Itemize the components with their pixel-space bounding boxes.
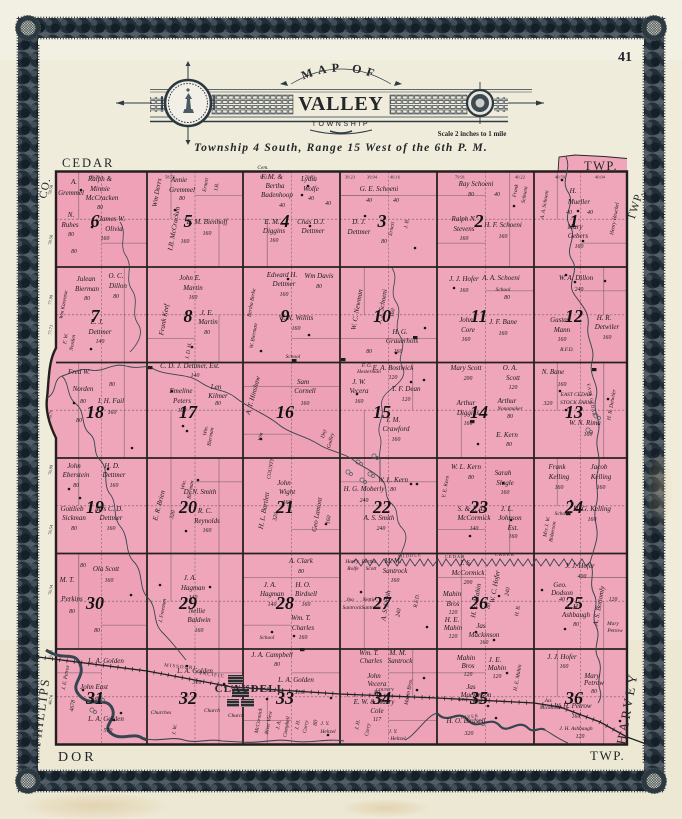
svg-text:Bierman: Bierman: [75, 285, 100, 293]
svg-text:Ralph N.: Ralph N.: [451, 215, 477, 223]
svg-text:120: 120: [449, 634, 458, 640]
svg-text:Dettmer: Dettmer: [347, 228, 371, 236]
svg-text:Arthur: Arthur: [497, 397, 517, 405]
svg-text:20: 20: [178, 497, 197, 517]
svg-text:160: 160: [392, 437, 401, 443]
svg-text:H. D.: H. D.: [103, 462, 120, 470]
svg-text:J. H. Ashbaugh: J. H. Ashbaugh: [559, 726, 592, 732]
svg-text:120: 120: [402, 397, 411, 403]
svg-text:School: School: [496, 287, 511, 293]
svg-text:80: 80: [113, 294, 119, 300]
svg-text:120: 120: [389, 375, 398, 381]
svg-text:40: 40: [494, 191, 500, 198]
svg-text:H. G. Kelling: H. G. Kelling: [572, 505, 611, 513]
svg-text:Santrock: Santrock: [383, 567, 409, 575]
svg-text:40: 40: [308, 195, 314, 202]
svg-text:EAST CEDAR: EAST CEDAR: [560, 392, 593, 398]
svg-text:33: 33: [275, 688, 294, 708]
svg-text:120: 120: [464, 672, 473, 678]
svg-text:160: 160: [108, 410, 117, 416]
svg-text:Nellie: Nellie: [188, 607, 206, 615]
svg-text:Kelling: Kelling: [590, 473, 612, 481]
svg-text:160: 160: [558, 337, 567, 343]
svg-text:160: 160: [588, 517, 597, 523]
svg-text:Nonamaker: Nonamaker: [496, 406, 523, 412]
svg-text:John: John: [459, 316, 473, 324]
svg-text:Edward H.: Edward H.: [266, 271, 298, 279]
svg-text:John: John: [67, 462, 81, 470]
svg-text:J. Y.: J. Y.: [389, 729, 398, 735]
svg-text:J. Y.: J. Y.: [321, 721, 330, 727]
svg-text:40: 40: [366, 197, 372, 204]
svg-text:L. A. Golden: L. A. Golden: [176, 667, 213, 675]
svg-text:40.04: 40.04: [595, 175, 606, 180]
svg-text:80: 80: [468, 475, 474, 481]
svg-text:80: 80: [179, 196, 185, 202]
svg-text:J. L.: J. L.: [501, 505, 514, 513]
svg-text:E. W. & Harry: E. W. & Harry: [353, 698, 396, 706]
svg-text:32: 32: [178, 688, 197, 708]
svg-text:18: 18: [86, 402, 104, 422]
svg-text:3: 3: [377, 211, 387, 231]
svg-text:H. R.: H. R.: [596, 314, 612, 322]
svg-text:Dettmer: Dettmer: [102, 471, 126, 479]
svg-text:Frank: Frank: [547, 463, 566, 471]
svg-text:240: 240: [377, 525, 386, 532]
svg-text:Scott: Scott: [366, 566, 377, 572]
svg-text:Charles: Charles: [360, 657, 382, 665]
svg-text:117: 117: [373, 717, 382, 723]
svg-text:40: 40: [559, 596, 565, 603]
svg-text:J. J. Hofer: J. J. Hofer: [449, 275, 479, 283]
svg-text:CLAUDELL: CLAUDELL: [215, 683, 286, 695]
svg-text:160: 160: [107, 526, 116, 532]
svg-text:John E.: John E.: [179, 274, 201, 282]
svg-text:E. A. Bostwick: E. A. Bostwick: [372, 364, 415, 372]
svg-text:L. A. Golden: L. A. Golden: [87, 715, 124, 723]
svg-text:Core: Core: [461, 326, 475, 334]
svg-text:160: 160: [189, 295, 198, 301]
svg-text:I. S.: I. S.: [459, 559, 471, 567]
svg-text:16: 16: [276, 402, 294, 422]
svg-text:160: 160: [178, 408, 187, 414]
svg-text:Bros: Bros: [447, 600, 460, 608]
svg-text:Crawford: Crawford: [383, 425, 410, 433]
svg-text:80: 80: [80, 399, 86, 405]
svg-text:320: 320: [543, 401, 553, 407]
svg-text:Mickinson: Mickinson: [539, 705, 563, 711]
svg-text:80: 80: [97, 205, 103, 211]
svg-text:STOCK FARM: STOCK FARM: [560, 400, 592, 406]
svg-text:120: 120: [509, 385, 518, 391]
svg-text:A. Clark: A. Clark: [288, 557, 314, 565]
svg-text:40.22: 40.22: [515, 175, 525, 180]
svg-text:160: 160: [480, 640, 489, 646]
svg-text:Fred W.: Fred W.: [67, 368, 90, 376]
svg-text:Nettie: Nettie: [362, 597, 376, 603]
svg-text:Perkins: Perkins: [60, 595, 83, 603]
svg-text:Jno: Jno: [346, 597, 354, 603]
svg-text:80: 80: [316, 284, 322, 290]
svg-text:Santrock: Santrock: [343, 605, 363, 611]
svg-text:Arthur: Arthur: [456, 399, 476, 407]
svg-text:N. Bane: N. Bane: [541, 368, 565, 376]
svg-text:Mrs C. D.: Mrs C. D.: [94, 505, 123, 513]
svg-text:310: 310: [294, 690, 304, 696]
svg-text:160: 160: [299, 635, 308, 641]
svg-text:Dillon: Dillon: [108, 282, 127, 290]
svg-text:A. A. Schoeni: A. A. Schoeni: [481, 274, 520, 282]
svg-text:Dettmer: Dettmer: [272, 280, 296, 288]
svg-text:Bertha: Bertha: [362, 559, 377, 565]
svg-text:Wm. T.: Wm. T.: [291, 614, 311, 622]
svg-text:S. & J. A.: S. & J. A.: [458, 505, 485, 513]
svg-text:160: 160: [394, 349, 403, 355]
svg-text:J. A. Campbell: J. A. Campbell: [251, 651, 293, 659]
svg-text:80: 80: [215, 401, 221, 407]
svg-text:80: 80: [69, 609, 75, 615]
svg-text:Chas D.J.: Chas D.J.: [297, 218, 325, 226]
svg-text:160: 160: [203, 231, 212, 237]
svg-text:McCormick: McCormick: [456, 514, 491, 522]
svg-text:James W.: James W.: [99, 215, 125, 223]
svg-text:Mahin: Mahin: [442, 590, 462, 598]
svg-text:Wm Davis: Wm Davis: [305, 272, 334, 280]
svg-text:CREEK: CREEK: [495, 552, 515, 557]
svg-text:160: 160: [280, 292, 289, 298]
svg-text:160: 160: [575, 244, 584, 250]
svg-text:H. G. Moberly: H. G. Moberly: [343, 485, 386, 493]
svg-text:Jas: Jas: [476, 622, 486, 630]
svg-text:Dettmer: Dettmer: [88, 328, 112, 336]
svg-text:Ray Schoeni: Ray Schoeni: [458, 180, 494, 188]
svg-text:O. A.: O. A.: [503, 364, 518, 372]
svg-text:160: 160: [181, 239, 190, 245]
svg-text:G. E. Schoeni: G. E. Schoeni: [360, 185, 399, 193]
svg-text:VALLEY: VALLEY: [298, 93, 384, 115]
svg-text:Baldwin: Baldwin: [187, 616, 211, 624]
svg-text:160: 160: [301, 401, 310, 407]
svg-text:Jas: Jas: [466, 683, 476, 691]
svg-text:Dettmer: Dettmer: [301, 227, 325, 235]
svg-text:80: 80: [298, 569, 304, 575]
svg-text:Mary: Mary: [566, 223, 583, 231]
svg-text:Wm. T.: Wm. T.: [359, 649, 379, 657]
svg-text:240: 240: [575, 286, 584, 293]
svg-text:Eberstein: Eberstein: [62, 471, 90, 479]
svg-text:Scott: Scott: [506, 374, 521, 382]
svg-text:TWP.: TWP.: [590, 748, 625, 763]
svg-text:160: 160: [283, 500, 292, 506]
svg-text:30: 30: [85, 593, 104, 613]
svg-text:80: 80: [71, 526, 77, 532]
svg-text:W. N. Rima: W. N. Rima: [569, 419, 601, 427]
svg-text:160: 160: [603, 335, 612, 341]
svg-text:8: 8: [184, 306, 193, 326]
svg-text:H. E.: H. E.: [444, 616, 460, 624]
svg-text:160: 160: [462, 337, 471, 343]
svg-text:Ola Scott: Ola Scott: [93, 565, 120, 573]
svg-text:40: 40: [325, 200, 331, 207]
svg-text:80: 80: [84, 296, 90, 302]
svg-text:Geo.: Geo.: [553, 581, 567, 589]
svg-text:Petrow: Petrow: [583, 679, 604, 687]
svg-text:40: 40: [566, 209, 572, 216]
svg-text:E. M. Bienhoff: E. M. Bienhoff: [186, 218, 229, 226]
svg-text:Len: Len: [210, 383, 222, 391]
svg-text:CEDAR: CEDAR: [62, 156, 114, 170]
svg-text:140: 140: [191, 372, 200, 379]
svg-text:80: 80: [381, 239, 387, 245]
svg-text:Cem.: Cem.: [257, 165, 268, 171]
svg-text:O. C.: O. C.: [109, 272, 124, 280]
svg-text:Gustav: Gustav: [550, 316, 571, 324]
svg-text:J. J. Hofer: J. J. Hofer: [547, 653, 577, 661]
svg-text:Sarah: Sarah: [495, 469, 512, 477]
svg-text:160: 160: [292, 326, 301, 332]
svg-text:140: 140: [189, 594, 198, 601]
svg-text:120: 120: [609, 597, 618, 603]
svg-text:Bertha: Bertha: [265, 182, 285, 190]
svg-text:Scale 2 inches to 1 mile: Scale 2 inches to 1 mile: [438, 130, 507, 138]
svg-text:W. A. Dillon: W. A. Dillon: [559, 274, 594, 282]
svg-text:H.: H.: [569, 187, 577, 195]
svg-text:160: 160: [355, 399, 364, 405]
svg-text:160: 160: [203, 528, 212, 534]
svg-text:Gremmel: Gremmel: [169, 186, 195, 194]
svg-text:Olivia: Olivia: [105, 225, 123, 233]
svg-text:J. W.: J. W.: [352, 378, 366, 386]
svg-text:J. J. Hofer: J. J. Hofer: [565, 562, 595, 570]
svg-text:400: 400: [578, 573, 587, 580]
svg-text:Mann: Mann: [553, 326, 571, 334]
svg-text:J. A.: J. A.: [264, 581, 277, 589]
svg-text:160: 160: [572, 714, 581, 720]
svg-text:Martin: Martin: [182, 284, 203, 292]
svg-text:Santrock: Santrock: [388, 657, 414, 665]
svg-text:Church: Church: [204, 708, 220, 714]
svg-text:Mackinson: Mackinson: [468, 631, 500, 639]
svg-text:John: John: [367, 672, 381, 680]
svg-text:Peters: Peters: [172, 397, 191, 405]
svg-text:120: 120: [493, 674, 502, 680]
svg-text:160: 160: [195, 628, 204, 634]
svg-text:J. F. Bane: J. F. Bane: [489, 318, 517, 326]
svg-text:Vecera: Vecera: [349, 387, 369, 395]
svg-text:140: 140: [470, 525, 479, 532]
svg-text:80: 80: [591, 689, 597, 695]
svg-text:11: 11: [470, 306, 487, 326]
svg-text:Diggins: Diggins: [262, 227, 285, 235]
svg-text:Wolfe: Wolfe: [303, 185, 319, 193]
svg-text:Dettmer: Dettmer: [99, 514, 123, 522]
svg-text:Petrow: Petrow: [606, 628, 623, 634]
svg-text:Churches: Churches: [151, 710, 171, 716]
svg-text:80: 80: [390, 487, 396, 493]
svg-text:Santrock: Santrock: [362, 605, 382, 611]
svg-text:570: 570: [104, 728, 113, 734]
svg-text:Hagman: Hagman: [180, 584, 206, 592]
svg-text:D. J.: D. J.: [351, 218, 366, 226]
svg-text:160: 160: [499, 234, 508, 240]
svg-text:160: 160: [499, 331, 508, 337]
svg-text:Hagman: Hagman: [259, 590, 285, 598]
svg-text:Heltzel: Heltzel: [389, 736, 406, 742]
svg-text:80: 80: [366, 349, 372, 355]
svg-text:H. O. Birdsell: H. O. Birdsell: [445, 717, 485, 725]
svg-text:W. L. Kern: W. L. Kern: [378, 476, 409, 484]
svg-text:40: 40: [279, 202, 285, 209]
svg-text:L. A. Golden: L. A. Golden: [87, 657, 124, 665]
svg-text:68.11: 68.11: [260, 175, 270, 180]
svg-text:Mahin: Mahin: [487, 664, 507, 672]
svg-text:Birdsell: Birdsell: [295, 590, 317, 598]
svg-text:39.94: 39.94: [367, 175, 378, 180]
svg-text:160: 160: [560, 664, 569, 670]
svg-text:John East: John East: [80, 683, 109, 691]
svg-text:H. G.: H. G.: [391, 328, 408, 336]
svg-text:80: 80: [374, 690, 380, 696]
svg-text:41: 41: [618, 50, 632, 65]
svg-text:80: 80: [71, 249, 77, 255]
svg-text:78.79: 78.79: [90, 175, 101, 180]
svg-text:Jas: Jas: [544, 698, 551, 704]
svg-text:DOR: DOR: [58, 750, 97, 765]
svg-text:160: 160: [509, 534, 518, 540]
svg-text:160: 160: [391, 578, 400, 584]
svg-text:Wight: Wight: [279, 488, 296, 496]
svg-text:Stevens: Stevens: [454, 225, 475, 233]
svg-text:Julean: Julean: [77, 275, 96, 283]
svg-text:M. M.: M. M.: [389, 649, 407, 657]
svg-text:140: 140: [268, 601, 277, 608]
svg-text:Cole: Cole: [370, 707, 383, 715]
svg-text:Sickman: Sickman: [62, 514, 86, 522]
svg-text:T. M.: T. M.: [386, 416, 401, 424]
svg-text:C. D. J. Dettmer, Est.: C. D. J. Dettmer, Est.: [160, 362, 220, 370]
svg-text:Minnie: Minnie: [89, 185, 110, 193]
svg-text:Mahin: Mahin: [456, 654, 476, 662]
svg-text:160: 160: [555, 485, 564, 491]
svg-text:Est.: Est.: [507, 524, 519, 532]
svg-text:M. M.: M. M.: [384, 557, 402, 565]
svg-text:Vecera: Vecera: [367, 680, 387, 688]
svg-text:160: 160: [105, 578, 114, 584]
svg-text:140: 140: [96, 338, 105, 345]
svg-text:J. E.: J. E.: [489, 656, 502, 664]
svg-text:School: School: [260, 635, 275, 641]
svg-text:80: 80: [80, 563, 86, 569]
svg-text:160: 160: [270, 238, 279, 244]
svg-text:Mackinson: Mackinson: [460, 691, 492, 699]
svg-text:160: 160: [501, 490, 510, 496]
svg-text:Sam: Sam: [297, 378, 309, 386]
svg-text:200: 200: [464, 580, 473, 586]
svg-text:80: 80: [76, 418, 82, 424]
svg-text:80: 80: [506, 442, 512, 448]
svg-text:80: 80: [504, 295, 510, 301]
svg-text:Kilmer: Kilmer: [207, 392, 228, 400]
svg-text:Dodson: Dodson: [550, 589, 573, 597]
svg-text:John: John: [277, 479, 291, 487]
svg-text:160: 160: [597, 485, 606, 491]
svg-text:80: 80: [109, 382, 115, 388]
svg-text:40: 40: [393, 197, 399, 204]
svg-text:TWP.: TWP.: [584, 159, 618, 173]
svg-text:Martin: Martin: [197, 318, 218, 326]
svg-text:200: 200: [464, 376, 473, 382]
svg-text:W. N. Willits: W. N. Willits: [279, 314, 314, 322]
svg-text:Jacob: Jacob: [591, 463, 608, 471]
svg-text:M. T.: M. T.: [59, 576, 75, 584]
svg-text:R. C.: R. C.: [197, 507, 212, 515]
svg-text:T. F. Dean: T. F. Dean: [392, 385, 421, 393]
svg-text:80: 80: [507, 414, 513, 420]
svg-text:160: 160: [110, 483, 119, 489]
svg-text:Diggins: Diggins: [456, 409, 479, 417]
svg-text:Bros: Bros: [462, 662, 475, 670]
svg-text:Church: Church: [228, 713, 244, 719]
svg-text:80: 80: [204, 330, 210, 336]
svg-text:J. A.: J. A.: [184, 574, 197, 582]
svg-text:J. E.: J. E.: [201, 309, 214, 317]
svg-text:39.23: 39.23: [345, 175, 356, 180]
svg-text:Norden: Norden: [72, 385, 94, 393]
svg-text:160: 160: [460, 236, 469, 242]
svg-text:Gottlieb: Gottlieb: [61, 505, 84, 513]
svg-text:A. S. Smith: A. S. Smith: [363, 514, 395, 522]
svg-text:80: 80: [68, 232, 74, 238]
svg-text:79.73: 79.73: [305, 175, 316, 180]
svg-text:80: 80: [94, 628, 100, 634]
svg-text:Cornell: Cornell: [294, 387, 315, 395]
svg-text:80: 80: [313, 719, 320, 726]
svg-text:A.: A.: [70, 178, 77, 186]
svg-text:McCracken: McCracken: [85, 194, 119, 202]
svg-text:240: 240: [360, 497, 369, 504]
svg-text:R.F.D.: R.F.D.: [559, 347, 574, 353]
svg-text:160: 160: [101, 236, 110, 242]
svg-text:80: 80: [468, 192, 474, 198]
svg-text:160: 160: [584, 432, 593, 438]
svg-text:McCormick: McCormick: [450, 569, 485, 577]
svg-text:Slagle: Slagle: [496, 479, 514, 487]
svg-text:N.: N.: [67, 211, 75, 219]
svg-text:79.91: 79.91: [455, 175, 465, 180]
svg-text:40.16: 40.16: [390, 175, 401, 180]
svg-text:160: 160: [302, 602, 311, 608]
svg-text:40: 40: [587, 209, 593, 216]
svg-text:J. H.: J. H.: [566, 603, 580, 611]
svg-text:Charles: Charles: [292, 624, 314, 632]
svg-text:160: 160: [460, 288, 469, 294]
svg-text:Mueller: Mueller: [567, 198, 590, 206]
svg-text:Rolfe: Rolfe: [346, 565, 359, 572]
svg-text:Township 4 South, Range 15 Wes: Township 4 South, Range 15 West of the 6…: [194, 142, 488, 154]
svg-text:Ruhes: Ruhes: [60, 221, 78, 229]
svg-text:Mary: Mary: [606, 621, 619, 627]
svg-text:Badenhoop: Badenhoop: [261, 191, 293, 199]
svg-text:Harry: Harry: [344, 559, 359, 565]
svg-text:Reynolds: Reynolds: [193, 517, 220, 525]
svg-text:Ashbaugh: Ashbaugh: [561, 611, 591, 619]
svg-text:80: 80: [274, 662, 280, 668]
svg-text:W. L. Kern: W. L. Kern: [451, 463, 482, 471]
svg-text:80: 80: [573, 622, 579, 628]
svg-text:TOWNSHIP: TOWNSHIP: [312, 121, 370, 128]
svg-text:H. F. Schoeni: H. F. Schoeni: [483, 221, 522, 229]
svg-text:H. O.: H. O.: [294, 581, 311, 589]
